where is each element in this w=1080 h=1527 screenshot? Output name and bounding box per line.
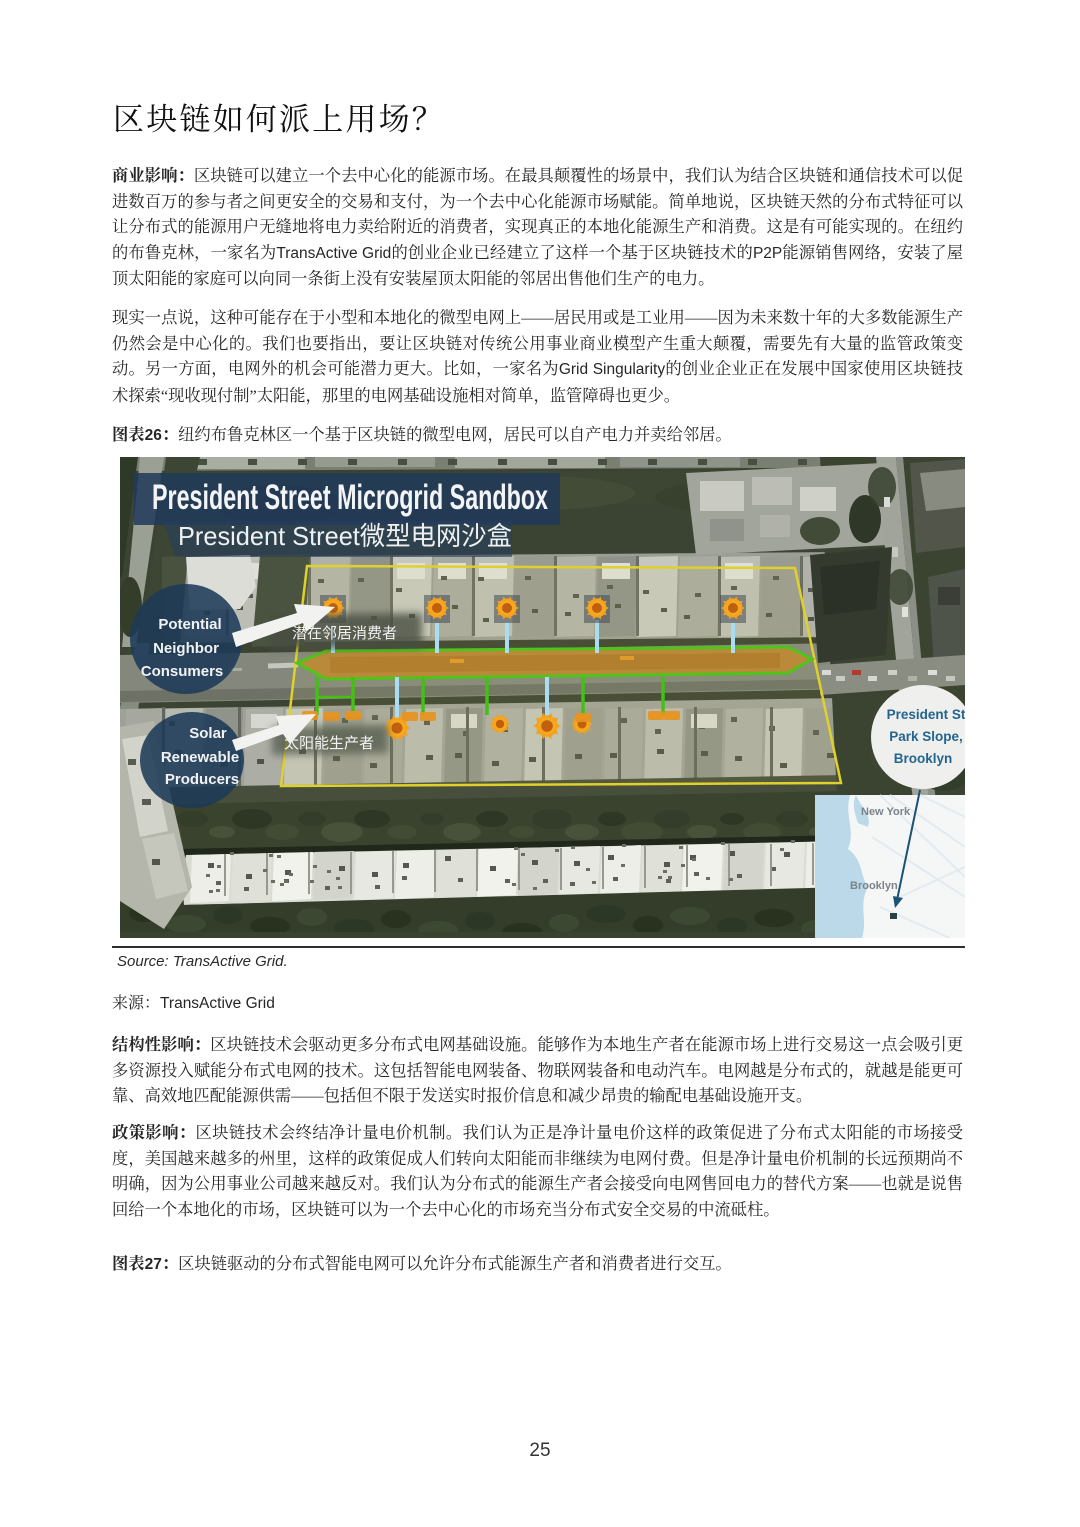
svg-text:Park Slope,: Park Slope, — [889, 729, 963, 744]
svg-text:Solar: Solar — [189, 725, 227, 742]
svg-text:Neighbor: Neighbor — [153, 640, 219, 657]
svg-text:Renewable: Renewable — [161, 749, 239, 766]
svg-text:Potential: Potential — [158, 616, 221, 633]
svg-text:New York: New York — [861, 806, 911, 818]
svg-text:太阳能生产者: 太阳能生产者 — [284, 735, 374, 752]
svg-text:President St: President St — [887, 707, 965, 722]
svg-text:Brooklyn: Brooklyn — [894, 751, 953, 766]
svg-text:Brooklyn: Brooklyn — [850, 880, 898, 892]
svg-text:Consumers: Consumers — [141, 663, 224, 680]
svg-text:President Street Microgrid San: President Street Microgrid Sandbox — [152, 478, 548, 517]
svg-text:Producers: Producers — [165, 771, 239, 788]
svg-text:President Street微型电网沙盒: President Street微型电网沙盒 — [178, 521, 512, 551]
